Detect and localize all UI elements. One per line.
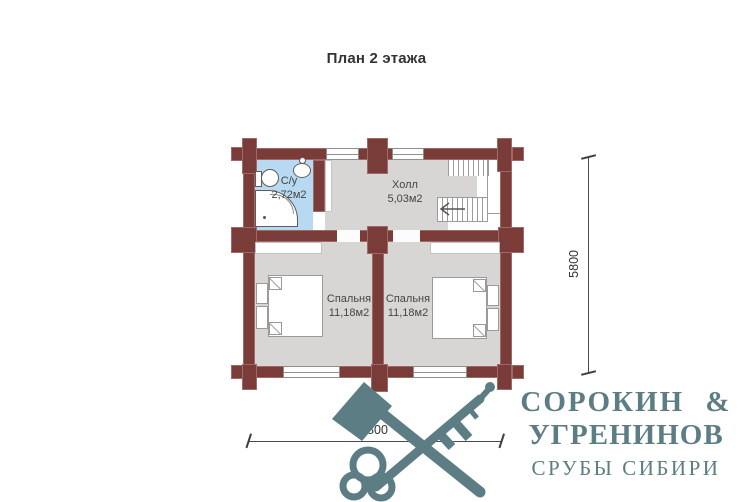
door-bedroom-left: [337, 230, 360, 242]
logo-tagline: СРУБЫ СИБИРИ: [500, 456, 752, 481]
room-area: 2,72м2: [261, 188, 317, 202]
room-name: Холл: [370, 178, 440, 192]
log-post-bottom-left: [242, 364, 257, 390]
page-title: План 2 этажа: [0, 50, 753, 68]
wardrobe-left: [255, 242, 322, 254]
window-hall-2: [392, 148, 424, 160]
log-post-mid-left: [231, 227, 257, 253]
logo-name-line1: СОРОКИН &: [500, 386, 752, 419]
stair-upper-flight: [448, 160, 489, 176]
room-name: Спальня: [376, 292, 440, 306]
stair-direction-arrow: [435, 201, 477, 217]
axe-key-logo-icon: [330, 377, 508, 502]
pillow-icon: [473, 324, 486, 337]
wardrobe-right: [430, 242, 500, 254]
window-hall-1: [326, 148, 359, 160]
dimension-tick: [581, 370, 596, 375]
wall-left: [243, 148, 255, 378]
stair-edge-line: [487, 160, 488, 214]
bathroom-label: С/у 2,72м2: [261, 174, 317, 202]
nightstand-icon: [487, 308, 499, 331]
log-end-bottom-right: [512, 365, 524, 379]
nightstand-icon: [256, 283, 268, 304]
stair-landing-line: [487, 213, 500, 214]
room-area: 5,03м2: [370, 192, 440, 206]
log-post-top-center: [367, 138, 388, 174]
pillow-icon: [269, 322, 282, 335]
hall-closet-strip: [325, 160, 332, 212]
hall-label: Холл 5,03м2: [370, 178, 440, 206]
sink-tap-icon: [299, 157, 306, 164]
company-logo-text: СОРОКИН & УГРЕНИНОВ СРУБЫ СИБИРИ: [500, 386, 752, 496]
room-name: Спальня: [317, 292, 381, 306]
bedroom-left-label: Спальня 11,18м2: [317, 292, 381, 320]
room-name: С/у: [261, 174, 317, 188]
bedroom-right-label: Спальня 11,18м2: [376, 292, 440, 320]
log-end-top-right: [512, 147, 524, 161]
nightstand-icon: [487, 285, 499, 306]
door-bedroom-right: [393, 230, 420, 242]
log-post-mid-right: [498, 227, 524, 253]
floor-plan-page: План 2 этажа: [0, 0, 753, 502]
wall-right: [500, 148, 512, 378]
nightstand-icon: [256, 306, 268, 329]
room-area: 11,18м2: [317, 306, 381, 320]
log-post-top-left: [242, 138, 257, 174]
pillow-icon: [473, 279, 486, 292]
dimension-height-label: 5800: [567, 250, 581, 278]
logo-name-line2: УГРЕНИНОВ: [500, 419, 752, 452]
pillow-icon: [269, 277, 282, 290]
stairwell-floor-tongue: [448, 176, 477, 197]
log-post-top-right: [497, 138, 512, 172]
dimension-line-vertical: [588, 157, 589, 373]
room-area: 11,18м2: [376, 306, 440, 320]
log-post-mid-center: [367, 226, 388, 254]
